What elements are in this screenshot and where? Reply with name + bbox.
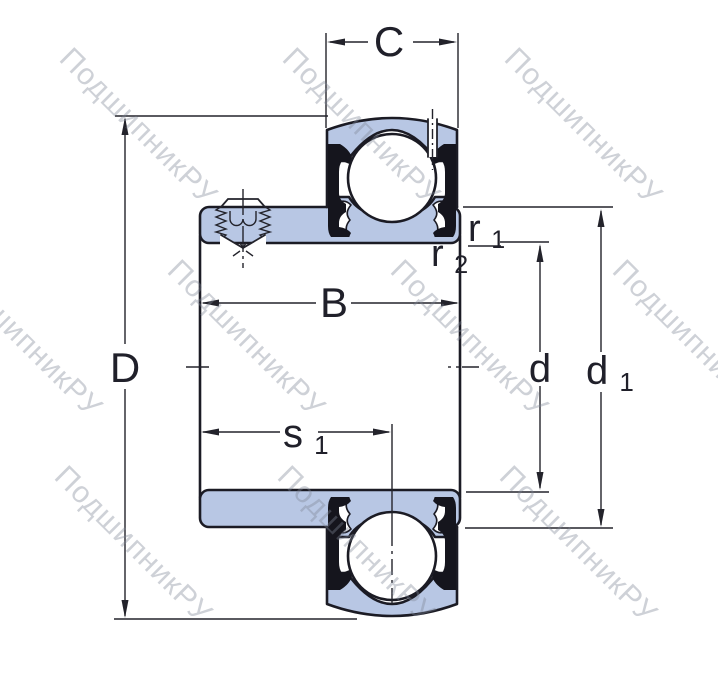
dim-label-d1: d 1: [586, 349, 634, 397]
dim-label-B: B: [320, 279, 348, 326]
dim-label-s1-base: s: [283, 412, 303, 456]
watermark-text: ПодшипникРУ: [48, 460, 218, 630]
dim-label-D: D: [110, 344, 140, 391]
dim-label-d1-sub: 1: [619, 367, 633, 397]
point-extension-dash-left: [233, 251, 240, 256]
dim-label-C: C: [374, 18, 404, 65]
watermark-text: ПодшипникРУ: [606, 254, 718, 424]
set-screw: [216, 189, 270, 268]
watermark-text: ПодшипникРУ: [493, 460, 663, 630]
dim-label-d1-base: d: [586, 349, 608, 393]
watermark-text: ПодшипникРУ: [161, 254, 331, 424]
watermark-text: ПодшипникРУ: [0, 254, 108, 424]
bearing-drawing-page: C D B s 1 d d 1 r 1 r 2 ПодшипникРУ Подш…: [0, 0, 718, 682]
dim-label-r1: r 1: [468, 208, 505, 254]
watermark-text: ПодшипникРУ: [384, 254, 554, 424]
dim-label-r2-base: r: [431, 233, 444, 275]
watermark-layer: ПодшипникРУ ПодшипникРУ ПодшипникРУ Подш…: [0, 42, 718, 630]
watermark-text: ПодшипникРУ: [53, 42, 223, 212]
dim-label-r1-sub: 1: [491, 226, 505, 254]
dim-label-r2: r 2: [431, 233, 468, 279]
point-extension-dash-right: [246, 251, 253, 256]
dim-label-r1-base: r: [468, 208, 481, 250]
dim-label-s1-sub: 1: [314, 430, 328, 460]
dim-label-r2-sub: 2: [454, 251, 468, 279]
bearing-cross-section-diagram: C D B s 1 d d 1 r 1 r 2 ПодшипникРУ Подш…: [0, 0, 718, 682]
watermark-text: ПодшипникРУ: [498, 42, 668, 212]
